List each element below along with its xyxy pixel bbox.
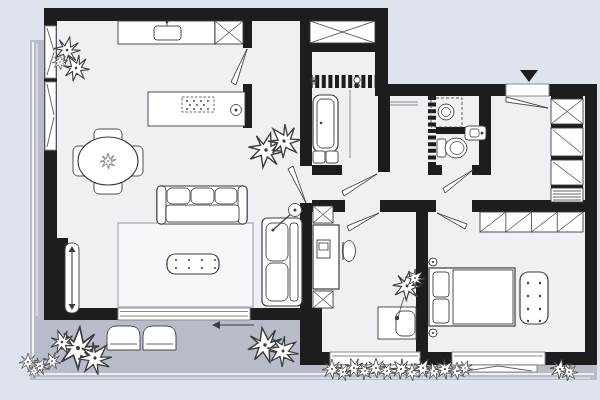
terrace-chair bbox=[143, 326, 176, 350]
hall-closet-1 bbox=[551, 128, 583, 156]
hall-shaft-icon bbox=[551, 99, 583, 124]
tall-cabinet-x bbox=[215, 21, 243, 44]
toilet bbox=[437, 138, 467, 158]
entrance-marker-icon bbox=[520, 70, 538, 82]
bathtub bbox=[313, 95, 338, 152]
floor-plan-drawing bbox=[0, 0, 600, 400]
desk-chair bbox=[343, 241, 356, 262]
pillow bbox=[433, 299, 449, 323]
terrace-chair bbox=[107, 326, 140, 350]
chaise-longue bbox=[262, 218, 302, 306]
wardrobe bbox=[480, 212, 583, 232]
pillow bbox=[433, 272, 449, 297]
ventilation-shaft-icon bbox=[310, 21, 375, 43]
left-window-upper bbox=[45, 26, 56, 78]
hall-radiator bbox=[551, 188, 583, 202]
coffee-table bbox=[167, 254, 219, 274]
sofa bbox=[157, 186, 247, 224]
double-bed bbox=[429, 268, 515, 326]
hall-closet-2 bbox=[551, 160, 583, 185]
island-sink bbox=[231, 105, 242, 116]
shower-mixer-icon bbox=[354, 77, 360, 87]
radiator bbox=[65, 243, 79, 313]
desk-cabinet-x bbox=[313, 291, 333, 308]
hand-basin bbox=[465, 126, 486, 140]
living-door-opening bbox=[300, 166, 312, 203]
monitor bbox=[317, 240, 330, 258]
left-window-lower bbox=[45, 82, 56, 150]
bench bbox=[520, 272, 548, 324]
floor-plan bbox=[0, 0, 600, 400]
desk-cabinet-x bbox=[313, 206, 333, 223]
kitchen-island bbox=[148, 92, 245, 126]
